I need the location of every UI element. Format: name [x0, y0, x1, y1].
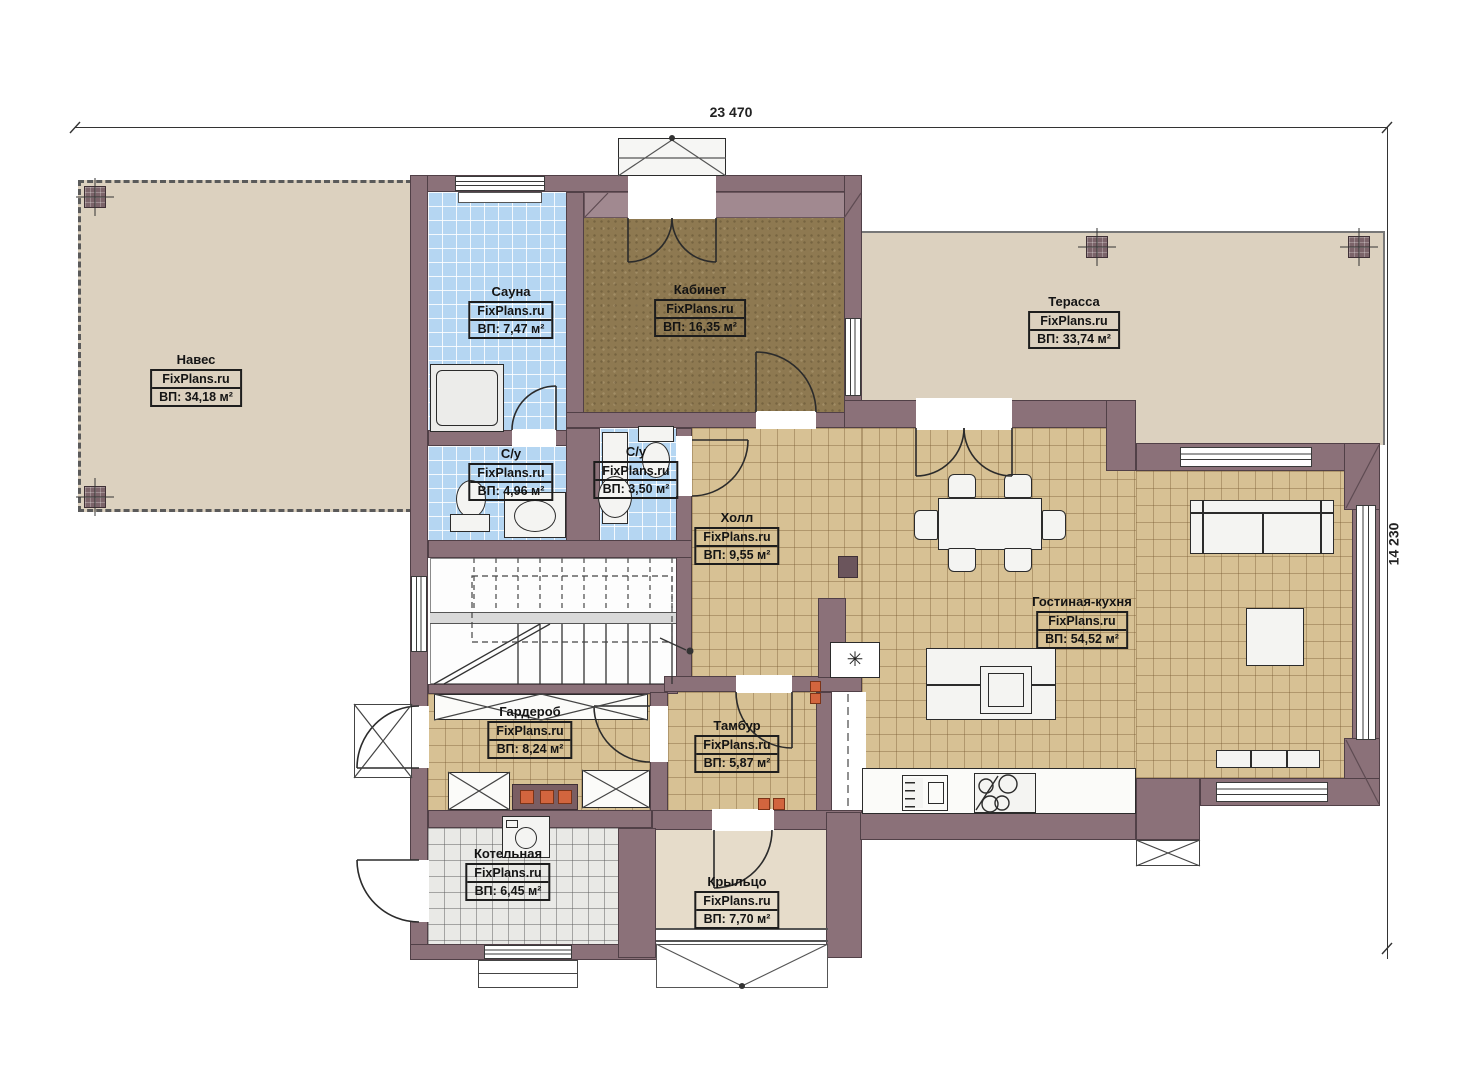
watermark: FixPlans.ru — [470, 303, 551, 321]
room-name: С/у — [468, 446, 553, 461]
watermark: FixPlans.ru — [152, 371, 240, 389]
room-label-krylco: Крыльцо FixPlans.ruВП: 7,70 м² — [694, 874, 779, 929]
room-area: ВП: 16,35 м² — [656, 319, 744, 335]
room-area: ВП: 34,18 м² — [152, 389, 240, 405]
room-label-sauna: Сауна FixPlans.ruВП: 7,47 м² — [468, 284, 553, 339]
watermark: FixPlans.ru — [696, 529, 777, 547]
floor-plan-canvas: 23 470 14 230 — [0, 0, 1473, 1080]
room-label-kabinet: Кабинет FixPlans.ruВП: 16,35 м² — [654, 282, 746, 337]
room-name: Навес — [150, 352, 242, 367]
stove-burners — [976, 775, 1017, 812]
room-name: Сауна — [468, 284, 553, 299]
pillar-axis-ticks — [76, 178, 1378, 516]
room-area: ВП: 5,87 м² — [696, 755, 777, 771]
room-area: ВП: 9,55 м² — [696, 547, 777, 563]
room-area: ВП: 54,52 м² — [1038, 631, 1126, 647]
room-label-su1: С/у FixPlans.ruВП: 4,96 м² — [468, 446, 553, 501]
room-name: Котельная — [465, 846, 550, 861]
room-name: Крыльцо — [694, 874, 779, 889]
room-area: ВП: 6,45 м² — [467, 883, 548, 899]
room-area: ВП: 8,24 м² — [489, 741, 570, 757]
room-name: Кабинет — [654, 282, 746, 297]
room-label-garderob: Гардероб FixPlans.ruВП: 8,24 м² — [487, 704, 572, 759]
watermark: FixPlans.ru — [467, 865, 548, 883]
room-name: Терасса — [1028, 294, 1120, 309]
watermark: FixPlans.ru — [470, 465, 551, 483]
watermark: FixPlans.ru — [1030, 313, 1118, 331]
room-name: Тамбур — [694, 718, 779, 733]
room-name: С/у — [593, 444, 678, 459]
watermark: FixPlans.ru — [1038, 613, 1126, 631]
room-name: Холл — [694, 510, 779, 525]
room-label-su2: С/у FixPlans.ruВП: 3,50 м² — [593, 444, 678, 499]
room-area: ВП: 4,96 м² — [470, 483, 551, 499]
watermark: FixPlans.ru — [656, 301, 744, 319]
watermark: FixPlans.ru — [696, 737, 777, 755]
watermark: FixPlans.ru — [595, 463, 676, 481]
room-label-naves: Навес FixPlans.ruВП: 34,18 м² — [150, 352, 242, 407]
room-name: Гардероб — [487, 704, 572, 719]
room-area: ВП: 7,47 м² — [470, 321, 551, 337]
room-label-gostinaya: Гостиная-кухня FixPlans.ruВП: 54,52 м² — [1032, 594, 1132, 649]
room-label-tambur: Тамбур FixPlans.ruВП: 5,87 м² — [694, 718, 779, 773]
staircase-lines — [434, 558, 694, 684]
room-area: ВП: 3,50 м² — [595, 481, 676, 497]
room-label-kotelnaya: Котельная FixPlans.ruВП: 6,45 м² — [465, 846, 550, 901]
room-area: ВП: 33,74 м² — [1030, 331, 1118, 347]
room-area: ВП: 7,70 м² — [696, 911, 777, 927]
room-label-holl: Холл FixPlans.ruВП: 9,55 м² — [694, 510, 779, 565]
room-label-terassa: Терасса FixPlans.ruВП: 33,74 м² — [1028, 294, 1120, 349]
room-name: Гостиная-кухня — [1032, 594, 1132, 609]
watermark: FixPlans.ru — [489, 723, 570, 741]
watermark: FixPlans.ru — [696, 893, 777, 911]
